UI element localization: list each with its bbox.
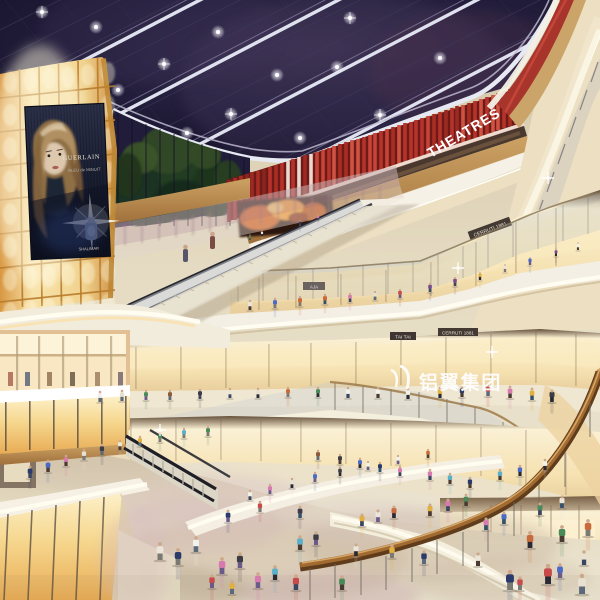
svg-text:CERRUTI 1881: CERRUTI 1881	[442, 331, 474, 336]
svg-text:TAI TAI: TAI TAI	[395, 335, 410, 341]
svg-text:铝翼集团: 铝翼集团	[419, 371, 502, 394]
svg-text:SHALIMAR: SHALIMAR	[78, 246, 99, 252]
